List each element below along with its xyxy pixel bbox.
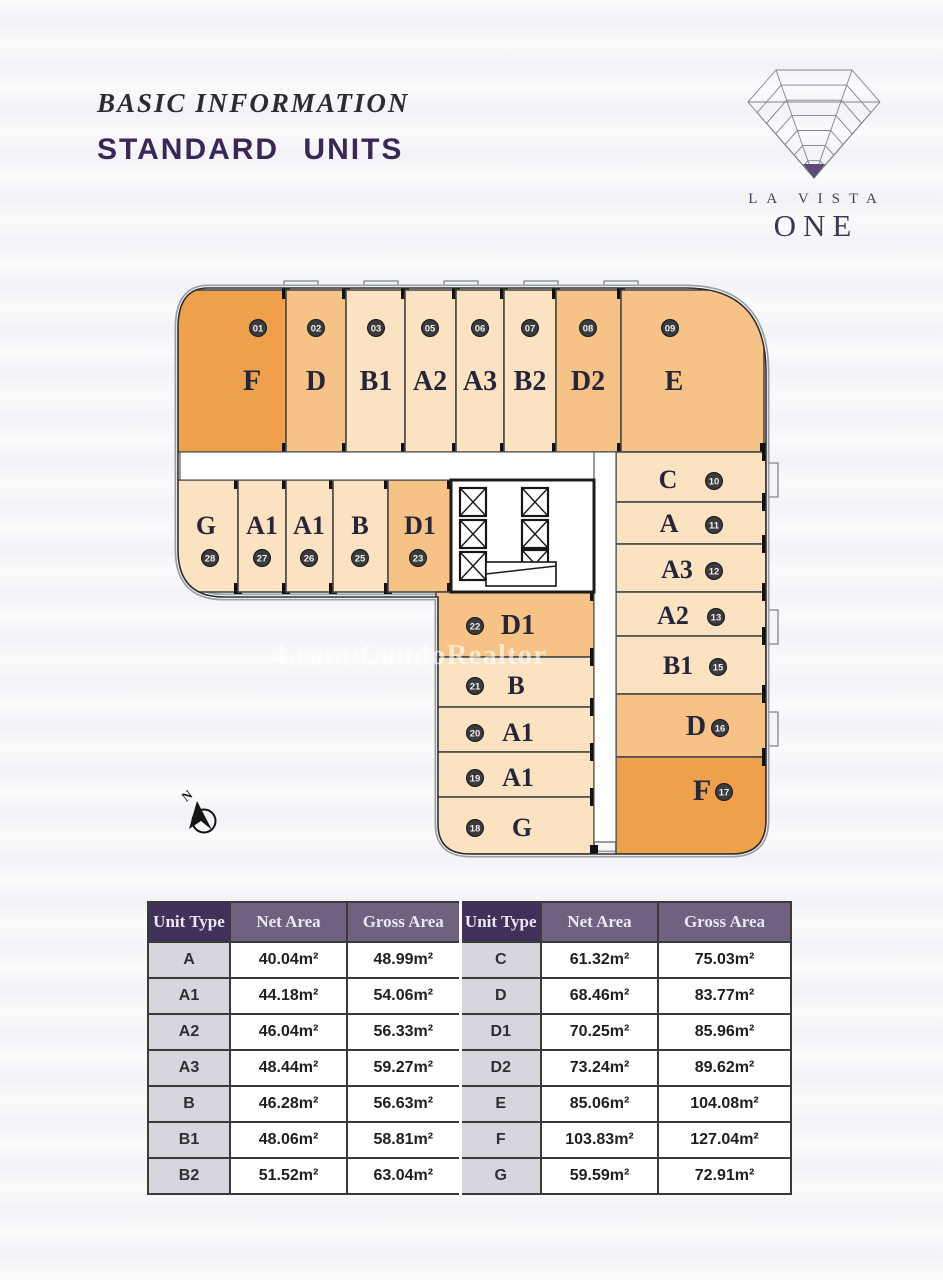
area-value-cell: 70.25m² [541,1014,658,1050]
table-row: B251.52m²63.04m²G59.59m²72.91m² [148,1158,791,1194]
building-core [451,480,594,592]
unit-number: 09 [665,323,676,334]
unit-number: 08 [583,323,594,334]
area-value-cell: 46.04m² [230,1014,347,1050]
unit-label: F [693,774,711,807]
unit-label: B1 [360,366,393,397]
room-20-A1: A120 [436,705,598,754]
area-value-cell: 104.08m² [658,1086,791,1122]
area-value-cell: 89.62m² [658,1050,791,1086]
area-table-body: A40.04m²48.99m²C61.32m²75.03m²A144.18m²5… [148,942,791,1194]
brochure-page: BASIC INFORMATION STANDARD UNITS LA VIST… [0,0,943,1280]
unit-number: 26 [304,553,315,564]
room-06-A3: A306 [456,288,508,454]
area-value-cell: 59.27m² [347,1050,460,1086]
unit-number: 22 [470,621,481,632]
area-value-cell: 61.32m² [541,942,658,978]
elevator-icon [460,488,486,516]
unit-label: F [243,364,261,397]
area-value-cell: 48.06m² [230,1122,347,1158]
area-value-cell: 68.46m² [541,978,658,1014]
room-15-B1: B115 [616,634,770,696]
area-value-cell: 72.91m² [658,1158,791,1194]
unit-label: A3 [463,366,497,397]
unit-number: 01 [253,323,264,334]
unit-number: 13 [711,612,722,623]
unit-label: A1 [293,511,325,540]
room-23-D1: D123 [388,478,455,594]
unit-number: 17 [719,787,730,798]
unit-type-cell: C [460,942,541,978]
unit-number: 27 [257,553,268,564]
elevator-icon [522,520,548,548]
table-header-row: Unit Type Net Area Gross Area Unit Type … [148,902,791,942]
table-row: B46.28m²56.63m²E85.06m²104.08m² [148,1086,791,1122]
area-value-cell: 48.99m² [347,942,460,978]
unit-type-cell: A3 [148,1050,230,1086]
table-row: A144.18m²54.06m²D68.46m²83.77m² [148,978,791,1014]
area-value-cell: 75.03m² [658,942,791,978]
area-value-cell: 40.04m² [230,942,347,978]
area-value-cell: 51.52m² [230,1158,347,1194]
col-header-gross-area-2: Gross Area [658,902,791,942]
logo-name-bottom: ONE [718,208,914,244]
area-value-cell: 44.18m² [230,978,347,1014]
table-row: B148.06m²58.81m²F103.83m²127.04m² [148,1122,791,1158]
unit-type-cell: A1 [148,978,230,1014]
unit-label: G [512,813,532,842]
area-value-cell: 83.77m² [658,978,791,1014]
unit-label: D [306,366,326,397]
unit-type-cell: F [460,1122,541,1158]
room-07-B2: B207 [504,288,560,454]
room-11-A: A11 [616,500,770,546]
unit-type-cell: G [460,1158,541,1194]
corridor-horizontal [180,452,616,480]
unit-label: A2 [657,601,689,630]
unit-number: 05 [425,323,436,334]
unit-type-cell: B1 [148,1122,230,1158]
unit-number: 23 [413,553,424,564]
unit-number: 25 [355,553,366,564]
unit-number: 06 [475,323,486,334]
unit-number: 20 [470,728,481,739]
area-value-cell: 54.06m² [347,978,460,1014]
unit-type-cell: D [460,978,541,1014]
elevator-icon [460,552,486,580]
unit-label: G [196,511,216,540]
stairs-icon [486,562,556,586]
floor-plan: F01D02B103A205A306B207D208E09G28A127A126… [166,280,782,873]
unit-label: A1 [502,718,534,747]
room-28-G: G28 [176,478,242,594]
area-value-cell: 46.28m² [230,1086,347,1122]
table-row: A348.44m²59.27m²D273.24m²89.62m² [148,1050,791,1086]
room-17-F: F17 [616,755,770,856]
room-25-B: B25 [333,478,392,594]
compass-north-label: N [179,786,196,804]
area-value-cell: 73.24m² [541,1050,658,1086]
unit-label: D2 [571,366,605,397]
area-value-cell: 85.06m² [541,1086,658,1122]
unit-type-cell: A2 [148,1014,230,1050]
unit-number: 12 [709,566,720,577]
page-title: STANDARD UNITS [97,133,409,167]
unit-number: 18 [470,823,481,834]
unit-label: D1 [501,610,535,641]
col-header-net-area: Net Area [230,902,347,942]
unit-number: 11 [709,520,720,531]
area-value-cell: 59.59m² [541,1158,658,1194]
corridor-vertical [594,452,616,842]
area-value-cell: 58.81m² [347,1122,460,1158]
unit-number: 21 [470,681,481,692]
unit-type-cell: E [460,1086,541,1122]
unit-label: E [665,366,684,397]
compass-icon: N [179,786,216,832]
unit-label: A [660,509,679,538]
room-19-A1: A119 [436,750,598,799]
unit-number: 19 [470,773,481,784]
unit-number: 15 [713,662,724,673]
brand-logo: LA VISTA ONE [714,60,914,244]
unit-label: D1 [404,511,436,540]
room-12-A3: A312 [616,542,770,594]
room-05-A2: A205 [405,288,460,454]
unit-label: B1 [663,651,693,680]
unit-number: 02 [311,323,322,334]
unit-label: B2 [514,366,547,397]
header-titles: BASIC INFORMATION STANDARD UNITS [97,88,409,167]
room-08-D2: D208 [556,288,625,454]
area-value-cell: 103.83m² [541,1122,658,1158]
area-value-cell: 56.33m² [347,1014,460,1050]
unit-label: A3 [661,555,693,584]
room-16-D: D16 [616,692,770,759]
unit-type-cell: B [148,1086,230,1122]
unit-label: C [659,465,678,494]
unit-label: B [507,671,524,700]
unit-type-cell: A [148,942,230,978]
col-header-unit-type: Unit Type [148,902,230,942]
elevator-icon [460,520,486,548]
unit-number: 07 [525,323,536,334]
unit-label: A1 [246,511,278,540]
unit-number: 28 [205,553,216,564]
room-01-F: F01 [176,288,290,454]
unit-type-cell: B2 [148,1158,230,1194]
unit-label: A1 [502,763,534,792]
col-header-net-area-2: Net Area [541,902,658,942]
area-value-cell: 127.04m² [658,1122,791,1158]
unit-label: A2 [413,366,447,397]
wall-column [760,288,768,299]
room-09-E: E09 [621,288,768,454]
room-10-C: C10 [616,450,770,504]
table-row: A246.04m²56.33m²D170.25m²85.96m² [148,1014,791,1050]
area-value-cell: 85.96m² [658,1014,791,1050]
logo-name-top: LA VISTA [720,191,914,208]
area-value-cell: 63.04m² [347,1158,460,1194]
watermark: 4.com/CondoRealtor [272,639,547,671]
area-value-cell: 48.44m² [230,1050,347,1086]
diamond-tip [803,164,825,178]
unit-type-cell: D2 [460,1050,541,1086]
wall-column [762,845,770,856]
room-27-A1: A127 [238,478,290,594]
diamond-logo-icon [714,60,914,182]
unit-label: D [686,711,706,742]
unit-number: 10 [709,476,720,487]
room-18-G: G18 [436,795,598,856]
unit-label: B [351,511,368,540]
col-header-unit-type-2: Unit Type [460,902,541,942]
unit-number: 03 [371,323,382,334]
elevator-icon [522,488,548,516]
room-02-D: D02 [286,288,350,454]
room-26-A1: A126 [286,478,337,594]
unit-type-cell: D1 [460,1014,541,1050]
col-header-gross-area: Gross Area [347,902,460,942]
room-13-A2: A213 [616,590,770,638]
area-value-cell: 56.63m² [347,1086,460,1122]
table-row: A40.04m²48.99m²C61.32m²75.03m² [148,942,791,978]
unit-number: 16 [715,723,726,734]
room-03-B1: B103 [346,288,409,454]
page-subtitle: BASIC INFORMATION [97,88,409,119]
unit-area-table: Unit Type Net Area Gross Area Unit Type … [147,901,792,1195]
